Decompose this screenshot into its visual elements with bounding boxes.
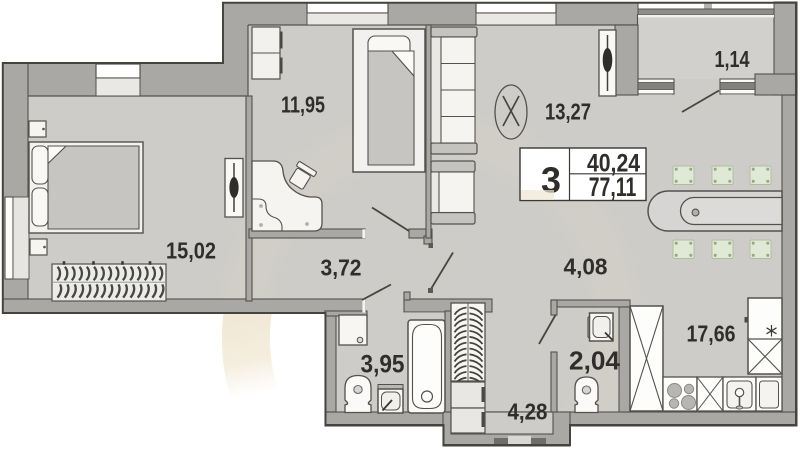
svg-text:2,04: 2,04	[569, 346, 621, 376]
svg-text:13,27: 13,27	[545, 99, 591, 125]
svg-text:11,95: 11,95	[281, 92, 325, 118]
svg-text:17,66: 17,66	[687, 321, 736, 347]
svg-text:77,11: 77,11	[589, 172, 637, 202]
svg-text:4,28: 4,28	[508, 399, 548, 425]
svg-text:4,08: 4,08	[564, 254, 608, 280]
svg-text:1,14: 1,14	[715, 46, 750, 72]
svg-text:3,72: 3,72	[321, 255, 362, 281]
svg-text:15,02: 15,02	[166, 238, 216, 264]
svg-text:3,95: 3,95	[361, 351, 405, 379]
